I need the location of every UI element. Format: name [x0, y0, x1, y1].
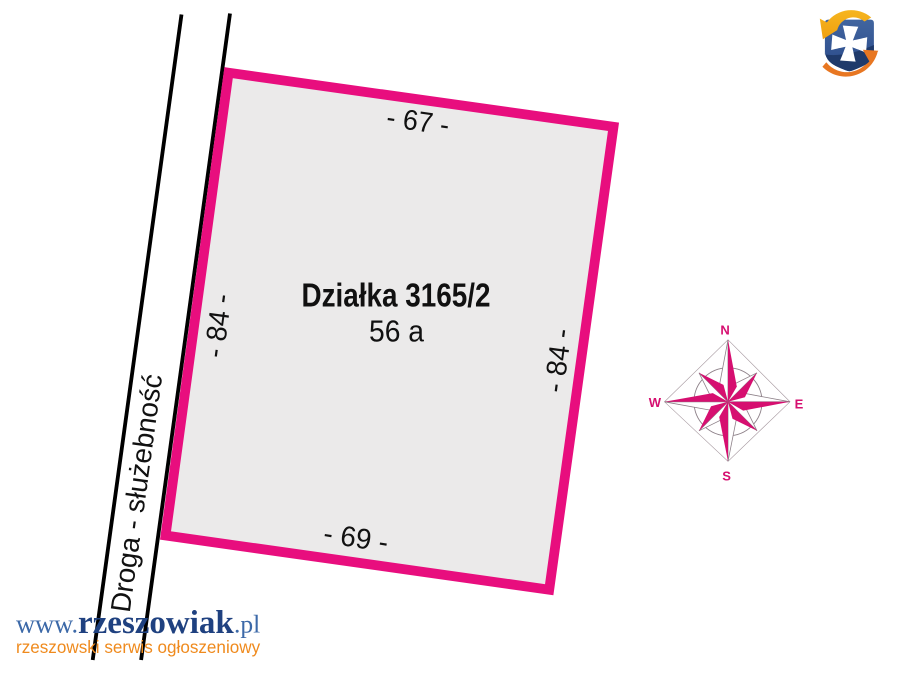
- svg-text:E: E: [795, 397, 804, 412]
- svg-text:S: S: [722, 469, 731, 484]
- svg-text:rzeszowiak: rzeszowiak: [78, 605, 234, 641]
- svg-text:.pl: .pl: [234, 609, 260, 638]
- svg-text:Działka 3165/2: Działka 3165/2: [302, 277, 491, 314]
- svg-text:rzeszowski serwis ogłoszeniowy: rzeszowski serwis ogłoszeniowy: [16, 638, 261, 657]
- svg-text:www.: www.: [16, 608, 78, 638]
- svg-text:56 a: 56 a: [369, 313, 425, 348]
- svg-text:N: N: [720, 323, 729, 338]
- svg-text:W: W: [649, 395, 662, 410]
